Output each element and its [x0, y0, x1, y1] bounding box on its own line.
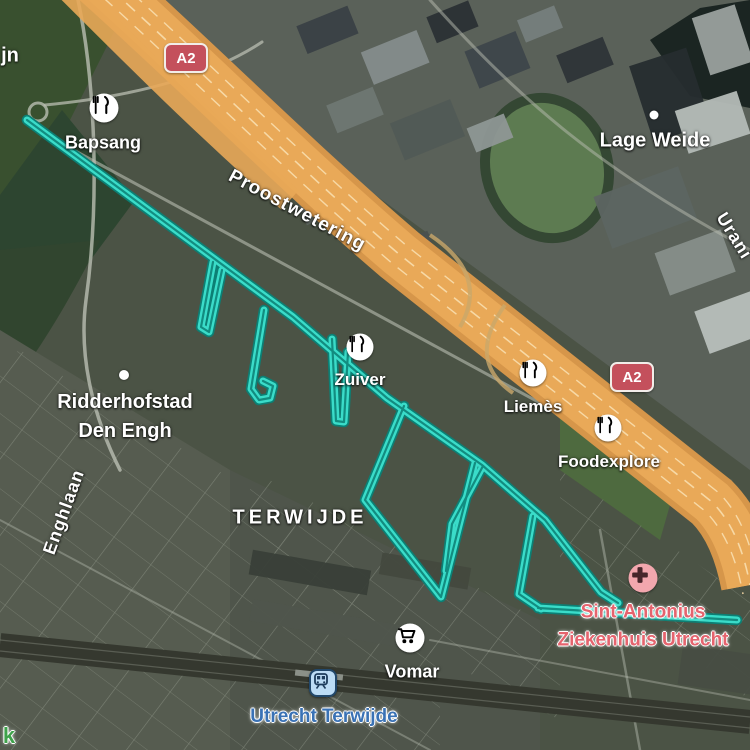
hospital-label-line2: Ziekenhuis Utrecht — [557, 626, 728, 654]
place-label-line1: Ridderhofstad — [57, 388, 193, 417]
poi-label-liemes[interactable]: Liemès — [504, 397, 563, 417]
place-label-ridderhofstad[interactable]: Ridderhofstad Den Engh — [57, 388, 193, 446]
poi-label-hospital[interactable]: Sint-Antonius Ziekenhuis Utrecht — [557, 598, 728, 653]
hospital-label-line1: Sint-Antonius — [557, 598, 728, 626]
clipped-park-label: k — [3, 723, 15, 749]
train-glyph — [311, 671, 331, 691]
poi-label-bapsang[interactable]: Bapsang — [65, 133, 141, 154]
map-viewport[interactable]: jn k A2 A2 Proostwetering Enghlaan Urani… — [0, 0, 750, 750]
place-label-line2: Den Engh — [57, 417, 193, 446]
station-label-utrecht-terwijde[interactable]: Utrecht Terwijde — [250, 706, 397, 728]
clipped-place-label: jn — [1, 45, 19, 68]
poi-label-foodexplore[interactable]: Foodexplore — [558, 452, 660, 472]
district-label-terwijde: TERWIJDE — [233, 507, 368, 530]
place-label-lage-weide[interactable]: Lage Weide — [600, 130, 711, 153]
train-station-icon[interactable] — [309, 669, 337, 697]
poi-label-zuiver[interactable]: Zuiver — [334, 370, 385, 390]
poi-label-vomar[interactable]: Vomar — [385, 662, 440, 683]
